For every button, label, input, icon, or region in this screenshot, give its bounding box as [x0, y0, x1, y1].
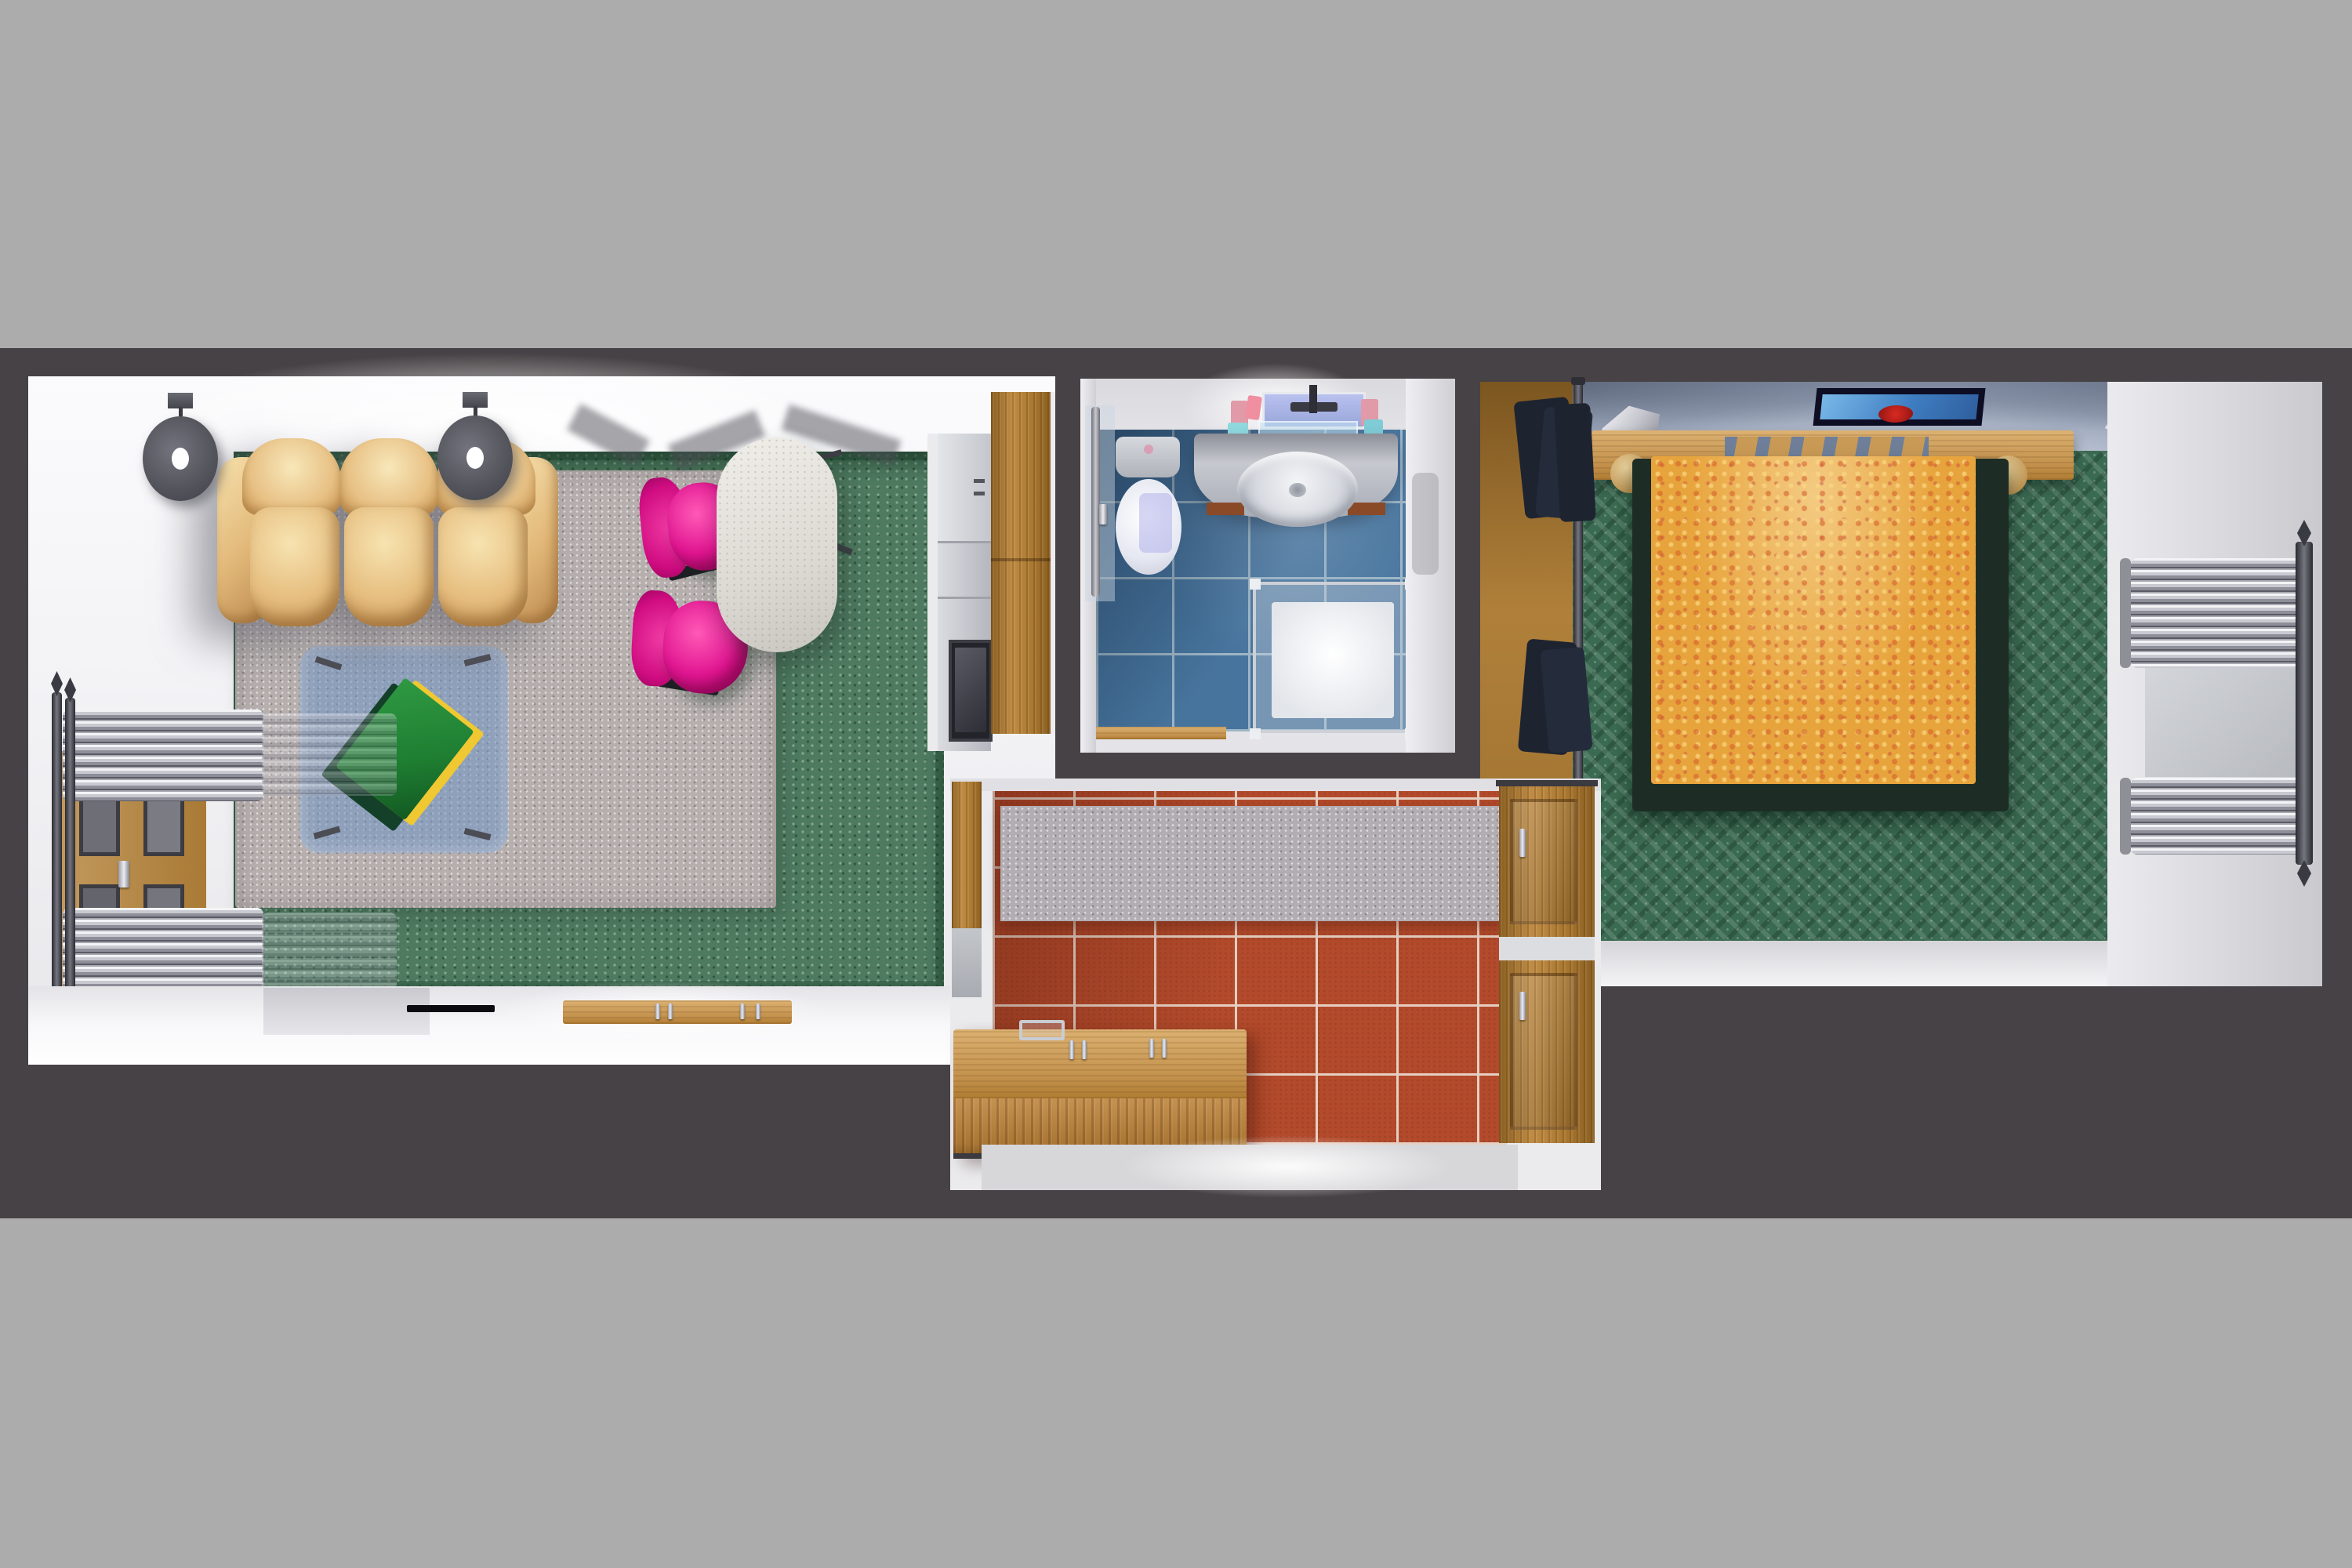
cabinet-handle [1519, 829, 1526, 857]
bedroom [1480, 382, 2322, 986]
clothes-item [1540, 647, 1592, 753]
right-wall [1406, 379, 1455, 753]
wall-cabinets [1499, 783, 1595, 1143]
side-cabinet-front [952, 928, 982, 997]
apartment-top-down-render: { "palette": { "backdrop": "#acacac", "s… [0, 0, 2352, 1568]
cabinet-handle [1519, 992, 1526, 1020]
cabinet-door-panel [1510, 799, 1577, 924]
toilet-cistern [1116, 437, 1180, 477]
bottom-wall [28, 986, 978, 1065]
shower-corner-post [1250, 579, 1261, 590]
tall-cabinet [991, 392, 1051, 734]
shower-corner-post [1250, 728, 1261, 739]
disc-center [172, 448, 189, 470]
towel [1412, 473, 1439, 575]
wall-picture [1813, 388, 1985, 426]
disc-mount [463, 392, 488, 408]
sofa-seat-cushion [438, 507, 528, 626]
cabinet-side-sliver [1051, 392, 1055, 734]
side-cabinet [952, 782, 982, 928]
stove [949, 640, 993, 742]
shower-tray [1272, 602, 1394, 718]
vanity-wood-base [1207, 503, 1244, 515]
cabinet-gap-shelf [1499, 937, 1595, 960]
wall-recess [263, 988, 430, 1035]
island-handle [1162, 1039, 1167, 1058]
kitchenette-edge [927, 434, 938, 751]
glass-door-pane [1085, 405, 1115, 601]
floor-light-glow [1123, 1135, 1452, 1198]
toilet-bowl [1116, 479, 1181, 575]
tv-remote-shelf [407, 1005, 495, 1012]
picture-red-motif [1878, 405, 1914, 423]
sideboard [563, 1000, 792, 1024]
wall-disc-speaker [437, 412, 513, 500]
sofa-back-cushion [339, 438, 438, 515]
radiator-cap [2120, 558, 2131, 668]
sofa-seat-cushion [250, 507, 339, 626]
bottom-floor [982, 1145, 1518, 1190]
radiator-pole [65, 698, 75, 1029]
stove-top [955, 648, 986, 732]
disc-center [466, 447, 484, 469]
cabinet-top-edge [1496, 780, 1598, 786]
sideboard-handle [740, 1004, 745, 1019]
island-handle [1149, 1039, 1154, 1058]
door-handle [118, 861, 129, 887]
window-wall [2107, 382, 2322, 986]
counter-divider [938, 597, 991, 599]
vanity-wood-base [1348, 503, 1385, 515]
wood-threshold [1096, 727, 1226, 739]
disc-mount [168, 393, 193, 408]
island-handle [1082, 1040, 1087, 1059]
bathroom [1080, 379, 1455, 753]
radiator-cap [2120, 778, 2131, 855]
sofa-back-cushion [242, 438, 341, 515]
radiator-lower [2131, 778, 2305, 855]
bed-blanket [1651, 456, 1976, 784]
island-top [953, 1029, 1247, 1098]
window-pane [2145, 666, 2299, 777]
wall-disc-speaker [143, 413, 218, 501]
sideboard-handle [655, 1004, 660, 1019]
radiator-pole [52, 692, 62, 1023]
bottom-floor-strip [1570, 941, 2107, 986]
cabinet-upper [1499, 786, 1595, 937]
gray-floor-mat [1000, 806, 1505, 921]
glass-door-handle [1099, 504, 1107, 524]
cabinet-lower [1499, 960, 1595, 1143]
hanging-clothes-bottom [1523, 641, 1606, 758]
hanging-clothes-top [1519, 399, 1610, 524]
island-handle [1069, 1040, 1074, 1059]
cabinet-divider [991, 558, 1051, 561]
flush-button [1144, 445, 1153, 454]
sink-faucet [974, 492, 985, 495]
curtain-pole [2296, 542, 2313, 865]
dining-table [717, 437, 837, 652]
sink-faucet [974, 479, 985, 483]
shower-enclosure [1253, 582, 1410, 733]
sofa-seat-cushion [344, 507, 434, 626]
counter-sink-section [938, 434, 991, 543]
radiator-upper-fade [262, 713, 397, 796]
sink-drain [1289, 483, 1306, 497]
sideboard-handle [756, 1004, 760, 1019]
sideboard-handle [668, 1004, 673, 1019]
oval-sink [1237, 452, 1358, 527]
kitchen [950, 779, 1601, 1190]
rail-cap [1571, 377, 1585, 385]
toilet-seat [1139, 493, 1172, 553]
radiator-upper [2131, 558, 2305, 668]
living-room [28, 376, 1055, 1065]
faucet-stem [1309, 385, 1317, 413]
radiator-upper [63, 710, 263, 801]
island-rack [1019, 1020, 1065, 1040]
glass-door-rail [1091, 407, 1100, 597]
clothes-item [1554, 403, 1596, 522]
